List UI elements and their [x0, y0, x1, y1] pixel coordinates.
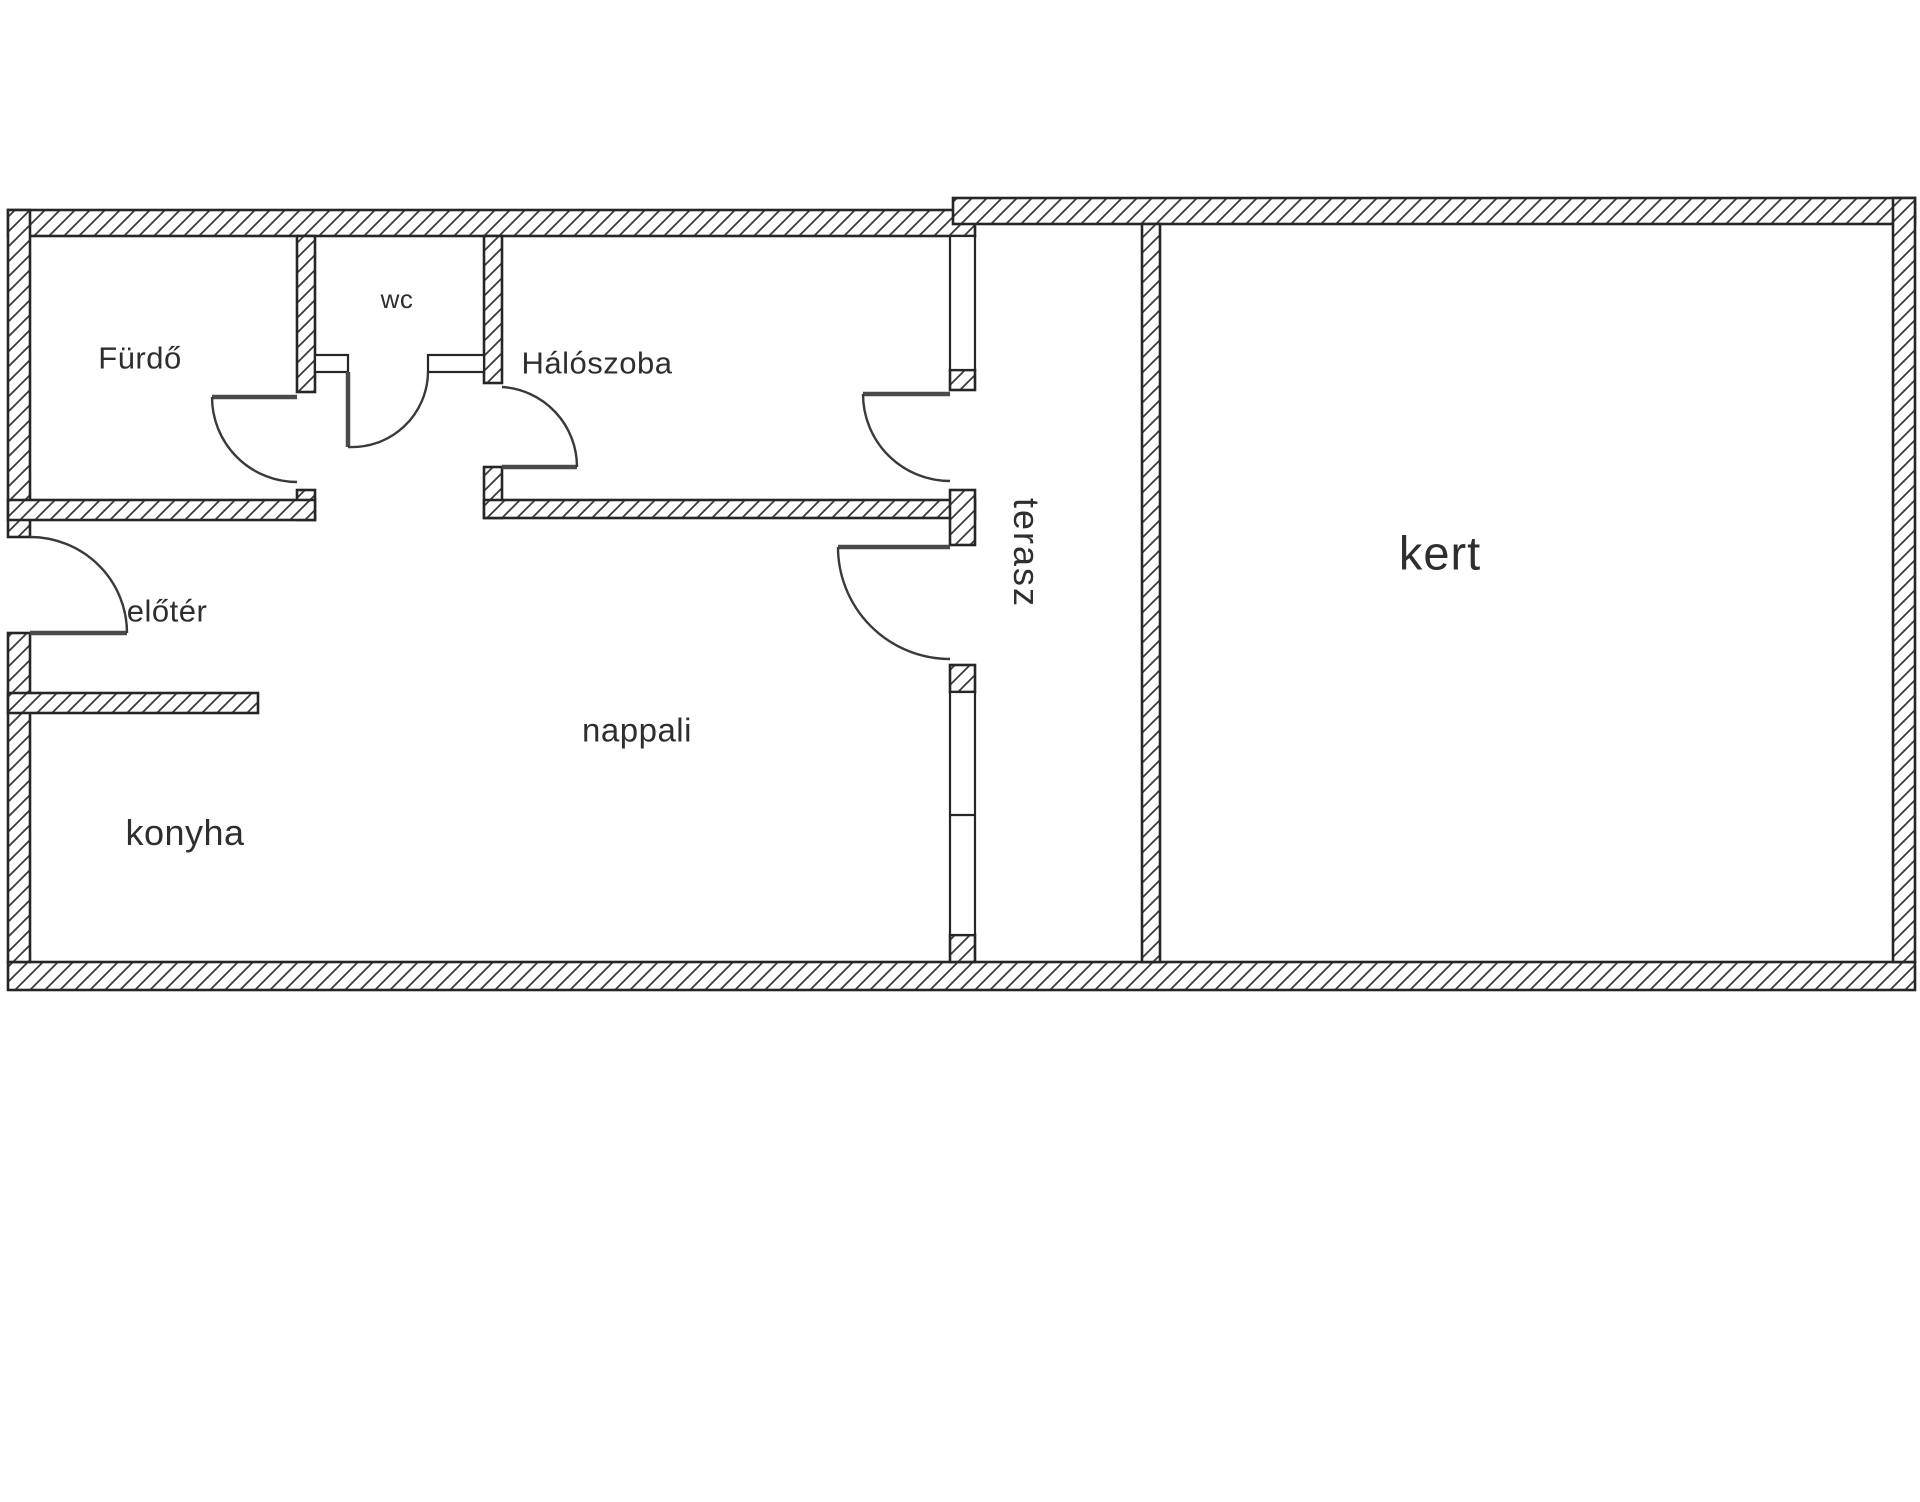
wall-bathroom-bottom [8, 500, 315, 520]
window-living-terrace [950, 692, 975, 935]
window-bedroom-terrace [950, 236, 975, 370]
wall-top-apartment [8, 210, 975, 236]
room-label-terrace: terasz [1008, 498, 1044, 608]
wall-top-garden [953, 198, 1915, 224]
door-arc-bedroom-terrace [863, 394, 950, 481]
door-arc-wc [348, 372, 428, 447]
room-label-bathroom: Fürdő [98, 343, 181, 374]
wall-left-upper [8, 210, 30, 537]
room-label-foyer: előtér [127, 596, 208, 627]
wall-kitchen-partial [8, 693, 258, 713]
wall-wc-bottom-right [428, 355, 484, 372]
wall-bottom [8, 962, 1915, 990]
wall-bathroom-wc-divider-upper [297, 236, 315, 392]
room-label-wc: wc [381, 286, 414, 312]
room-label-living-room: nappali [582, 714, 692, 747]
wall-pier-living [950, 665, 975, 692]
wall-terrace-garden-divider [1142, 224, 1160, 962]
floor-plan-drawing [0, 0, 1920, 1502]
room-label-garden: kert [1399, 530, 1481, 577]
door-arc-main-entry [30, 537, 127, 633]
floor-plan-canvas: Fürdő wc Hálószoba előtér nappali konyha… [0, 0, 1920, 1502]
windows-layer [315, 236, 975, 935]
door-arc-bedroom-entry [502, 387, 577, 467]
wall-pier-mid [950, 490, 975, 545]
door-arc-bathroom [212, 397, 297, 482]
wall-wc-bottom-left [315, 355, 348, 372]
room-label-kitchen: konyha [125, 815, 244, 851]
wall-bedroom-bottom [484, 500, 975, 518]
door-arc-living-terrace [838, 547, 950, 659]
wall-wc-bedroom-divider-upper [484, 236, 502, 383]
wall-pier-bottom [950, 935, 975, 962]
wall-left-lower [8, 633, 30, 962]
wall-right-garden [1893, 198, 1915, 962]
wall-pier-bedroom-window [950, 370, 975, 390]
room-label-bedroom: Hálószoba [522, 348, 673, 379]
